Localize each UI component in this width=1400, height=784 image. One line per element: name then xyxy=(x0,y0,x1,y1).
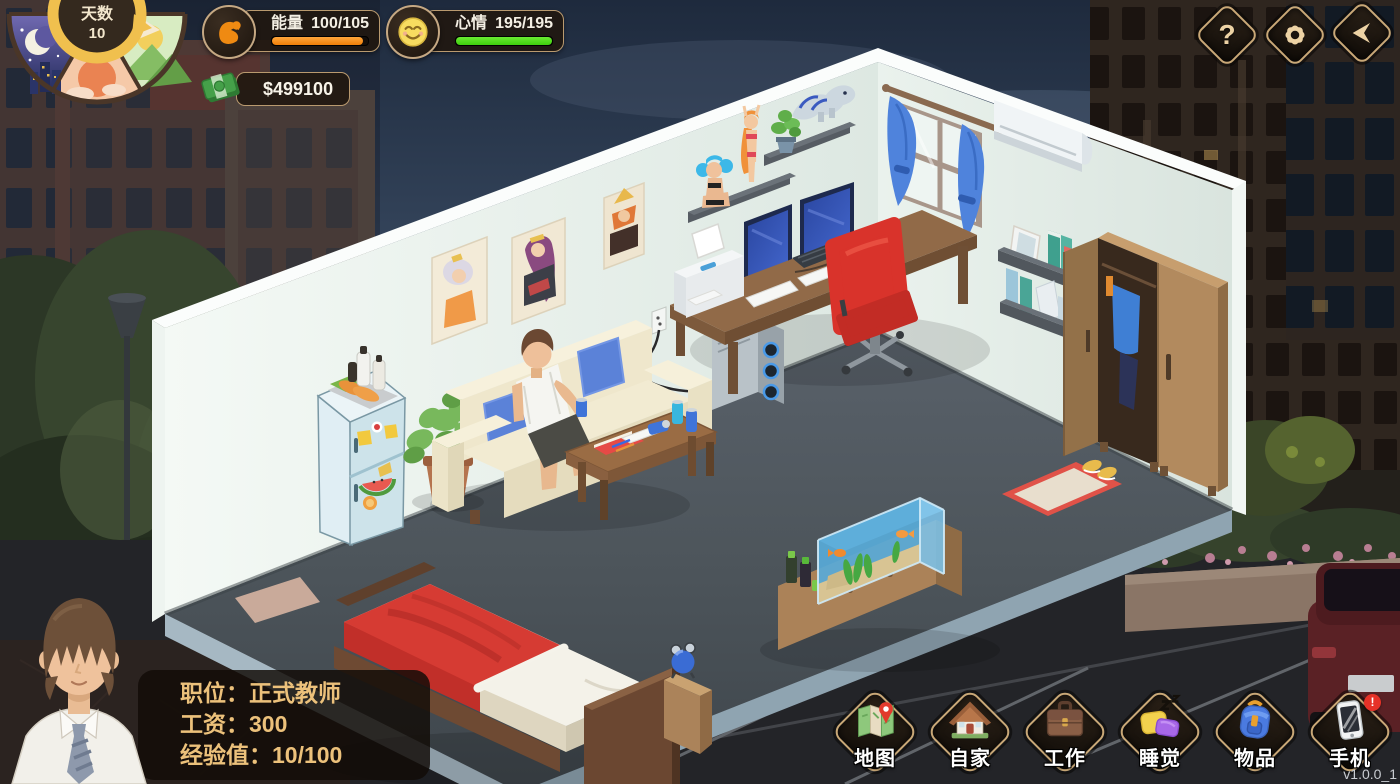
back-arrow-icon xyxy=(1339,10,1385,56)
nav-label-home: 自家 xyxy=(928,742,1012,771)
scene-canvas xyxy=(0,0,1400,784)
money-display: $499100 xyxy=(200,66,360,112)
mood-label: 心情 xyxy=(455,15,487,33)
player-stats-panel: 职位：正式教师 工资：300 经验值：10/100 xyxy=(138,670,430,780)
nav-label-map: 地图 xyxy=(833,742,917,771)
energy-value: 100/105 xyxy=(311,15,369,33)
job-title-line: 职位：正式教师 xyxy=(180,678,416,709)
house-icon xyxy=(948,698,992,742)
fridge-magnet xyxy=(357,430,372,446)
smiley-face-icon xyxy=(386,5,440,59)
gear-icon xyxy=(1272,12,1318,58)
nav-label-sleep: 睡觉 xyxy=(1118,742,1202,771)
map-pin-icon xyxy=(853,698,897,742)
pillow-zz-icon xyxy=(1138,694,1182,742)
drink-can xyxy=(576,400,587,417)
cash-icon xyxy=(200,66,244,110)
salary-line: 工资：300 xyxy=(180,709,416,740)
day-night-dial: 天数 10 xyxy=(0,0,200,130)
player-portrait xyxy=(2,558,156,784)
mood-value: 195/195 xyxy=(495,15,553,33)
poster-samurai xyxy=(604,183,644,269)
game-scene xyxy=(0,0,1400,784)
energy-bar xyxy=(271,36,369,46)
wardrobe-door-open xyxy=(1064,238,1098,456)
day-counter: 天数 10 xyxy=(60,5,134,43)
backpack-icon xyxy=(1233,697,1277,743)
version-text: v1.0.0_1 xyxy=(1343,766,1397,782)
money-value: $499100 xyxy=(236,72,350,106)
nav-label-work: 工作 xyxy=(1023,742,1107,771)
energy-label: 能量 xyxy=(271,15,303,33)
experience-line: 经验值：10/100 xyxy=(180,740,416,771)
phone-notification-badge: ! xyxy=(1364,694,1381,711)
mood-bar xyxy=(455,36,553,46)
question-mark-icon: ? xyxy=(1204,12,1250,58)
muscle-arm-icon xyxy=(202,5,256,59)
nav-label-items: 物品 xyxy=(1213,742,1297,771)
briefcase-icon xyxy=(1043,698,1087,742)
hanging-shirt xyxy=(1112,284,1140,354)
